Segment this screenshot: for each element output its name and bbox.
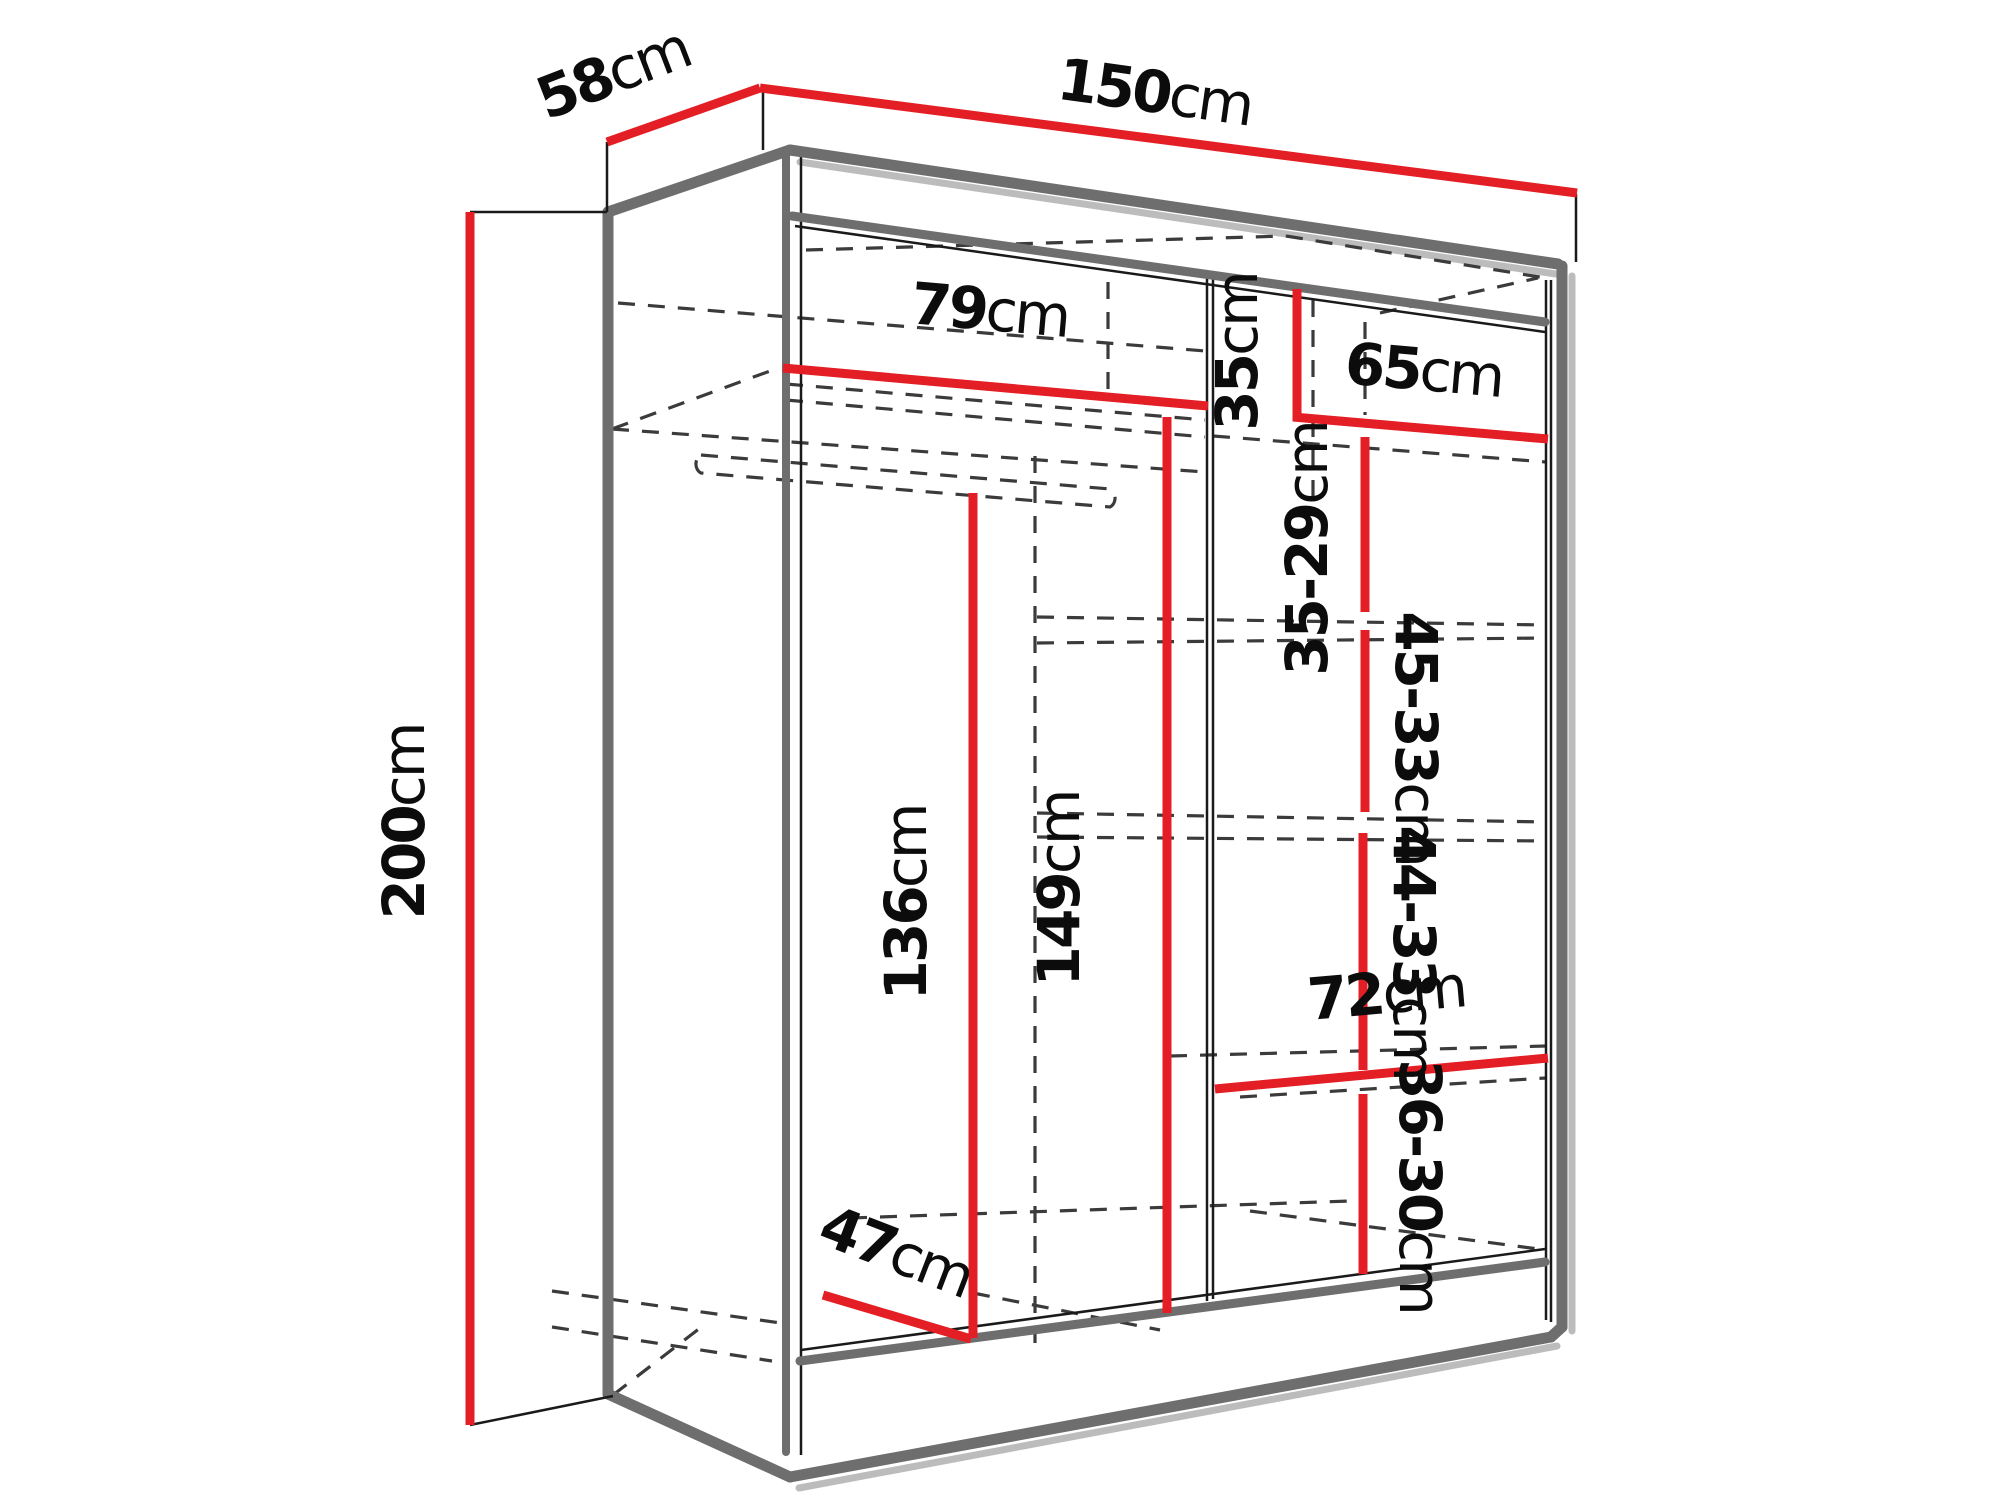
ext-height-bottom bbox=[470, 1396, 613, 1425]
dash-hanging-rod bbox=[696, 455, 1115, 507]
edge-side-top bbox=[608, 150, 790, 212]
label-shelf-65: 65cm bbox=[1342, 329, 1505, 410]
dash-shelf-thickness bbox=[786, 400, 1205, 437]
edge-left-panel-bottom bbox=[608, 1394, 790, 1477]
dash-floor-back-mid bbox=[850, 1201, 1350, 1218]
label-hanging-136: 136cm bbox=[872, 806, 940, 1001]
dash-right-shelf3-bottom bbox=[1037, 837, 1546, 841]
dash-shelf-left-edge bbox=[612, 371, 770, 429]
label-interior-149: 149cm bbox=[1025, 792, 1093, 987]
edge-right-notch bbox=[1551, 1327, 1562, 1337]
label-top-35: 35cm bbox=[1203, 273, 1271, 431]
label-gap-44-33: 44-33cm bbox=[1380, 825, 1448, 1079]
dash-base-back-1 bbox=[552, 1291, 788, 1324]
dimension-labels: 200cm 58cm 150cm 79cm 35cm 65cm 35-29cm … bbox=[370, 13, 1505, 1312]
label-bottom-depth-47: 47cm bbox=[810, 1191, 981, 1311]
label-shelf-79: 79cm bbox=[908, 269, 1071, 350]
dash-right-shelf4-top bbox=[1170, 1046, 1546, 1056]
wardrobe-dimension-diagram: 200cm 58cm 150cm 79cm 35cm 65cm 35-29cm … bbox=[0, 0, 2000, 1500]
label-shelf-72: 72cm bbox=[1305, 952, 1468, 1033]
label-gap-36-30: 36-30cm bbox=[1386, 1059, 1454, 1313]
shadow-bottom-edge bbox=[799, 1346, 1557, 1488]
edge-plinth-bottom bbox=[790, 1337, 1551, 1477]
diagram-canvas: 200cm 58cm 150cm 79cm 35cm 65cm 35-29cm … bbox=[0, 0, 2000, 1500]
dash-shelf-front bbox=[612, 429, 1205, 472]
dash-right-shelf1 bbox=[1213, 436, 1546, 462]
dim-line-shelf-79 bbox=[783, 368, 1208, 406]
label-gap-35-29: 35-29cm bbox=[1273, 422, 1341, 676]
label-height-200: 200cm bbox=[370, 725, 438, 920]
edge-crown-bottom bbox=[792, 216, 1545, 322]
dash-right-shelf3-top bbox=[1037, 813, 1546, 822]
